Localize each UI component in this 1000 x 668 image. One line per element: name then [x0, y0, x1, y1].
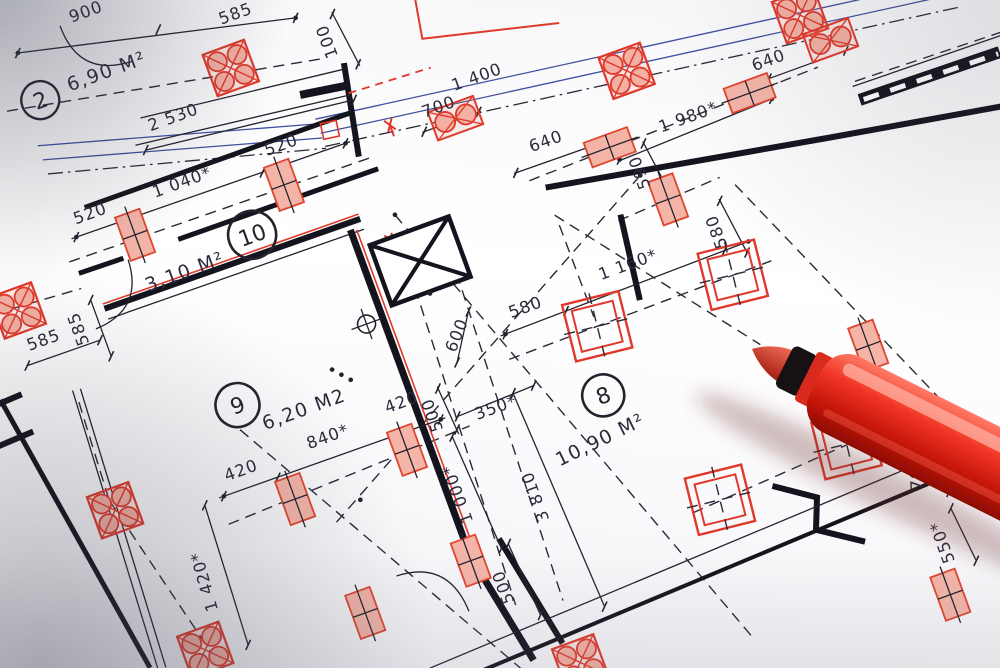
block-symbols [0, 0, 1000, 668]
dimension-label: 520 [71, 199, 110, 229]
room-area-label: 10,90 M² [552, 409, 648, 471]
blueprint-paper: 900 585 2 530 520 1 040* 520 1 400 700 1… [0, 0, 1000, 668]
dimension-label: 2 530 [145, 99, 201, 135]
dimension-label: 900 [66, 0, 105, 27]
dimension-label: 1 980* [656, 98, 720, 137]
dimension-label: 640 [526, 126, 565, 156]
dimension-label: 590 [625, 153, 655, 192]
dimension-label: 840* [304, 420, 352, 453]
dimension-label: 600 [441, 316, 472, 355]
dimension-label: 550* [926, 518, 959, 566]
dimension-label: 100 [312, 22, 342, 61]
dimension-label: 500 [488, 568, 518, 607]
shaft-cross-box [370, 216, 471, 305]
dimension-label: 580 [506, 292, 545, 322]
room-number: 9 [227, 392, 249, 420]
room-number: 2 [30, 87, 52, 115]
dimension-label: 640 [749, 45, 788, 75]
dimension-label: 580 [702, 212, 732, 251]
dimension-label: 3 810 [517, 469, 553, 525]
dimension-label: 520 [262, 130, 301, 160]
room-8-badge: 8 10,90 M² [533, 365, 652, 472]
room-2-badge: 2 6,90 M² [16, 43, 153, 124]
dimension-label: 420 [222, 455, 261, 485]
dimension-label: 1 400 [449, 59, 505, 95]
room-area-label: 3,10 M² [142, 248, 227, 297]
dimension-label: 1 420* [187, 549, 222, 613]
dimension-label: 585 [64, 309, 94, 348]
blueprint-photo: 900 585 2 530 520 1 040* 520 1 400 700 1… [0, 0, 1000, 668]
floor-plan-drawing: 900 585 2 530 520 1 040* 520 1 400 700 1… [0, 0, 1000, 668]
dimension-label: 798 [906, 456, 926, 491]
dimension-label: 1 040* [150, 163, 214, 202]
room-number: 8 [593, 383, 615, 411]
